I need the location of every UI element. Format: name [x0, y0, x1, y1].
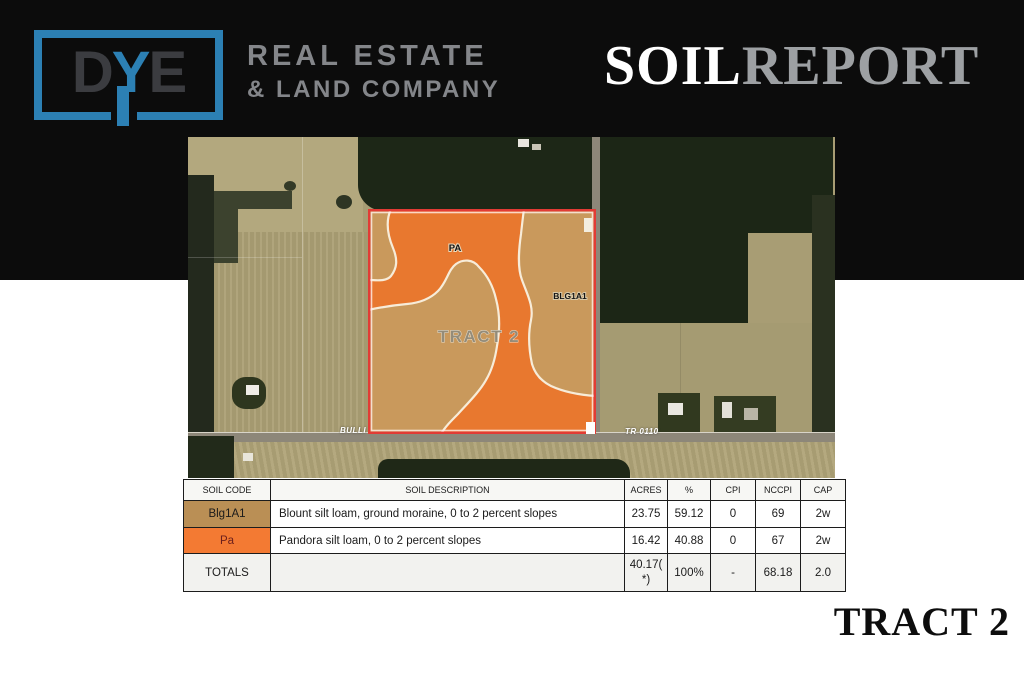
road-name-label: BULLI	[340, 426, 366, 435]
percent-cell: 40.88	[668, 528, 711, 554]
dark-field-patch	[214, 191, 238, 263]
totals-cpi-cell: -	[711, 554, 756, 592]
col-header-soil-code: SOIL CODE	[184, 480, 271, 501]
soil-report-page: DYE REAL ESTATE & LAND COMPANY SOILREPOR…	[0, 0, 1024, 682]
soil-code-cell: Pa	[184, 528, 271, 554]
col-header-acres: ACRES	[625, 480, 668, 501]
homestead	[714, 396, 776, 432]
tract-watermark-label: TRACT 2	[438, 327, 520, 346]
logo-y-tail	[117, 86, 129, 126]
brand-line2: & LAND COMPANY	[247, 76, 500, 104]
tract-parcel-overlay: PA BLG1A1 TRACT 2	[368, 209, 596, 434]
cap-cell: 2w	[801, 501, 846, 528]
cap-cell: 2w	[801, 528, 846, 554]
soil-description-cell: Blount silt loam, ground moraine, 0 to 2…	[271, 501, 625, 528]
tree-clump	[284, 181, 296, 191]
brand-line1: REAL ESTATE	[247, 40, 500, 73]
table-row: Blg1A1 Blount silt loam, ground moraine,…	[184, 501, 846, 528]
col-header-cpi: CPI	[711, 480, 756, 501]
building	[668, 403, 683, 415]
building	[722, 402, 732, 418]
acres-cell: 16.42	[625, 528, 668, 554]
aerial-soil-map: BULLI TR 0110 PA BLG1A1 TRACT 2	[188, 137, 835, 478]
field-boundary-line	[302, 137, 303, 432]
totals-cap-cell: 2.0	[801, 554, 846, 592]
soil-label-blg1a1: BLG1A1	[553, 291, 587, 301]
report-title-report: REPORT	[742, 35, 979, 97]
soil-code-cell: Blg1A1	[184, 501, 271, 528]
report-title: SOILREPORT	[604, 34, 979, 98]
col-header-description: SOIL DESCRIPTION	[271, 480, 625, 501]
table-row: Pa Pandora silt loam, 0 to 2 percent slo…	[184, 528, 846, 554]
percent-cell: 59.12	[668, 501, 711, 528]
building	[532, 144, 541, 150]
totals-percent-cell: 100%	[668, 554, 711, 592]
tree-line	[378, 459, 630, 478]
totals-description-cell	[271, 554, 625, 592]
logo-letter-e: E	[148, 40, 185, 105]
building	[518, 139, 529, 147]
soil-label-pa: PA	[449, 243, 462, 254]
acres-cell: 23.75	[625, 501, 668, 528]
tract-title: TRACT 2	[834, 598, 1010, 645]
forest-band	[358, 137, 600, 211]
building	[744, 408, 758, 420]
field-patch	[598, 323, 812, 432]
building	[246, 385, 259, 395]
dark-field-strip	[188, 175, 214, 433]
table-totals-row: TOTALS 40.17( *) 100% - 68.18 2.0	[184, 554, 846, 592]
map-marker	[586, 422, 595, 434]
brand-text: REAL ESTATE & LAND COMPANY	[247, 40, 500, 104]
map-marker	[584, 218, 592, 232]
totals-acres-cell: 40.17( *)	[625, 554, 668, 592]
soil-description-cell: Pandora silt loam, 0 to 2 percent slopes	[271, 528, 625, 554]
road-name-label: TR 0110	[625, 427, 659, 436]
tree-line	[812, 195, 835, 433]
col-header-nccpi: NCCPI	[756, 480, 801, 501]
col-header-percent: %	[668, 480, 711, 501]
totals-nccpi-cell: 68.18	[756, 554, 801, 592]
col-header-cap: CAP	[801, 480, 846, 501]
nccpi-cell: 67	[756, 528, 801, 554]
building	[243, 453, 253, 461]
field-boundary-line	[188, 257, 302, 258]
homestead	[658, 393, 700, 432]
report-title-soil: SOIL	[604, 35, 742, 97]
totals-label-cell: TOTALS	[184, 554, 271, 592]
cpi-cell: 0	[711, 528, 756, 554]
soil-data-table: SOIL CODE SOIL DESCRIPTION ACRES % CPI N…	[183, 479, 846, 592]
tree-clump	[188, 436, 234, 478]
tree-clump	[336, 195, 352, 209]
cpi-cell: 0	[711, 501, 756, 528]
table-header-row: SOIL CODE SOIL DESCRIPTION ACRES % CPI N…	[184, 480, 846, 501]
nccpi-cell: 69	[756, 501, 801, 528]
logo-letter-d: D	[72, 40, 112, 105]
